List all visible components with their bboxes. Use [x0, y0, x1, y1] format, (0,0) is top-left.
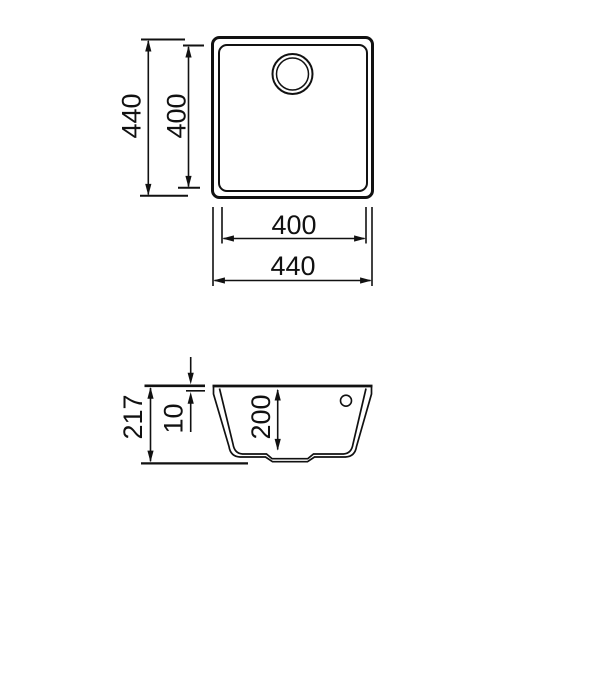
sink-inner-bowl-edge — [219, 45, 367, 191]
drain-outer-circle — [273, 54, 313, 94]
overflow-hole — [341, 395, 352, 406]
label-outer-width: 440 — [270, 251, 315, 281]
sink-drawing-svg: 440 400 400 440 — [0, 0, 600, 689]
label-rim-height: 10 — [159, 403, 189, 433]
label-inner-width: 400 — [271, 210, 316, 240]
section-bowl-outer-profile — [214, 387, 372, 462]
dimension-rim-height — [188, 357, 194, 432]
label-outer-height: 440 — [117, 93, 147, 138]
drain-inner-circle — [277, 58, 309, 90]
sink-outer-rim — [213, 38, 373, 198]
label-total-height: 217 — [118, 394, 148, 439]
label-inner-height: 400 — [162, 93, 192, 138]
dimension-total-height — [147, 387, 153, 462]
section-view: 217 10 200 — [118, 357, 373, 463]
top-view: 440 400 400 440 — [117, 38, 373, 287]
label-bowl-depth: 200 — [246, 394, 276, 439]
technical-drawing-page: 440 400 400 440 — [0, 0, 600, 689]
section-bowl-inner-profile — [220, 389, 367, 459]
